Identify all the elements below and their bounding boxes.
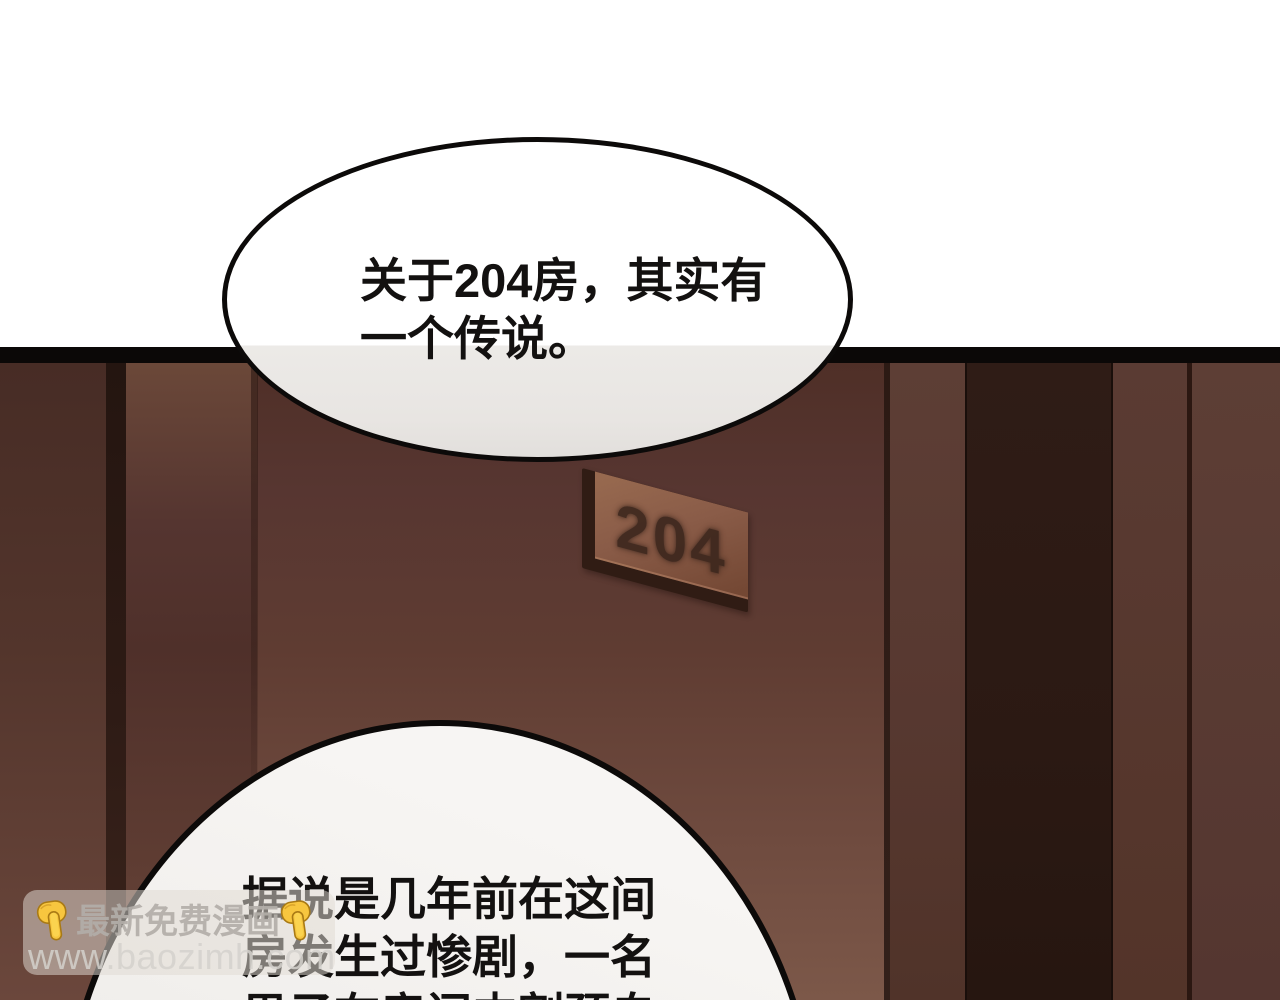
hallway-dark-gap <box>965 363 1113 1000</box>
door-frame-right <box>890 363 965 1000</box>
pointing-down-finger-icon <box>278 900 316 942</box>
wall-right-panel-a <box>1113 363 1187 1000</box>
speech-line: 关于204房，其实有 <box>360 252 767 310</box>
speech-line: 一个传说。 <box>360 310 767 368</box>
door-face-seam <box>251 363 258 833</box>
wall-right-panel-b <box>1192 363 1280 1000</box>
pointing-down-finger-icon <box>34 900 72 942</box>
watermark-site-url: www.baozimh.com <box>28 938 336 976</box>
speech-bubble-top-text: 关于204房，其实有 一个传说。 <box>360 252 767 368</box>
speech-line: 男子在房间内割颈自 <box>242 986 656 1000</box>
comic-panel: 204 关于204房，其实有 一个传说。 据说是几年前在这间 房发生过惨剧，一名… <box>0 0 1280 1000</box>
watermark-site-name: 最新免费漫画 <box>76 904 280 940</box>
